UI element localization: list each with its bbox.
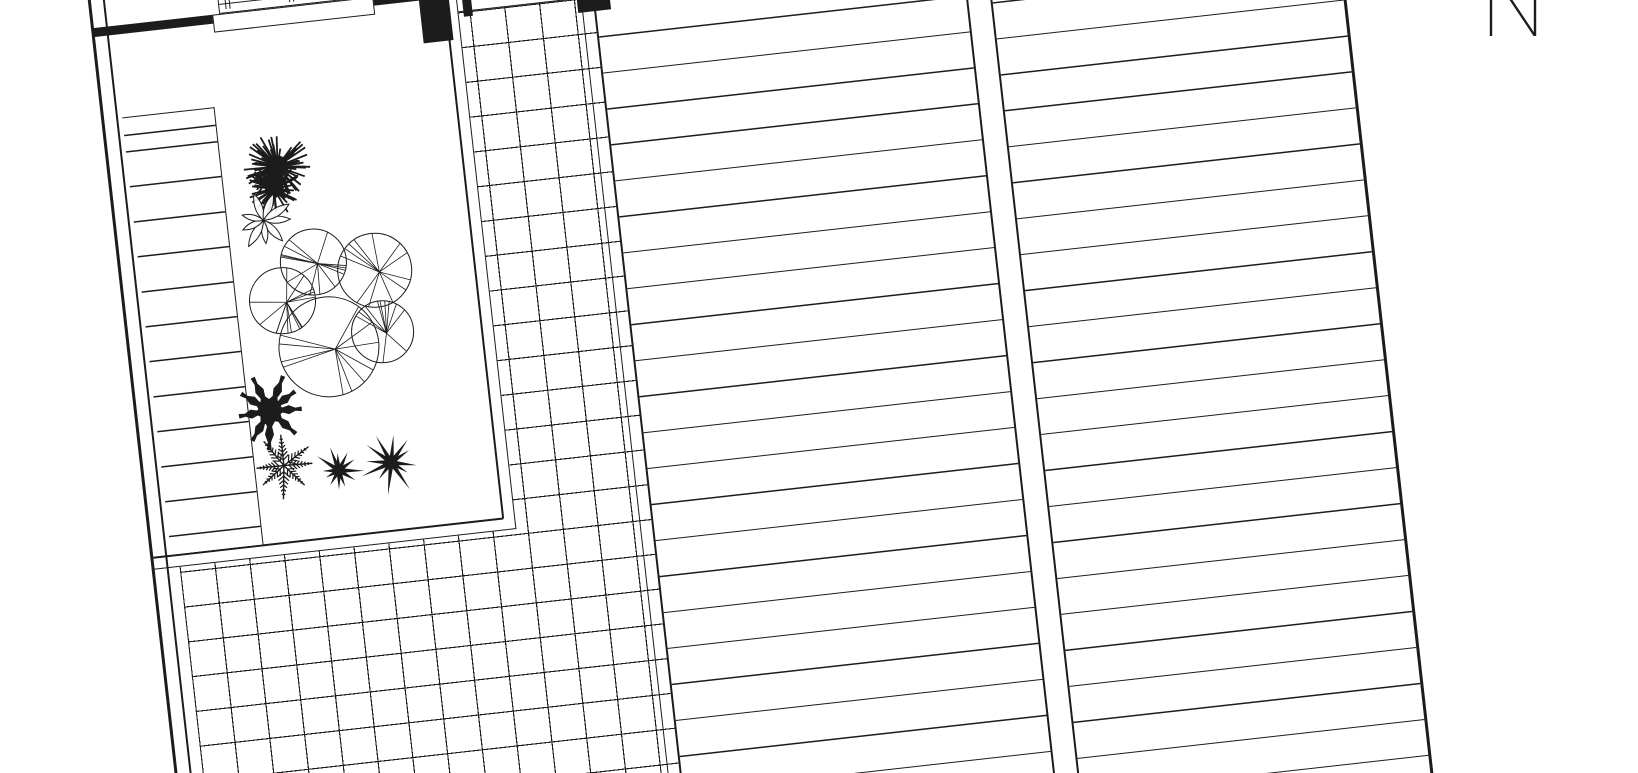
tree-canopy-symbol bbox=[334, 229, 416, 311]
tree-canopy-symbol bbox=[246, 264, 319, 337]
deck-panel-right bbox=[977, 0, 1436, 773]
site-plan-canvas: N bbox=[0, 0, 1638, 773]
star-plant-symbol bbox=[316, 444, 366, 491]
window-mullion-icon bbox=[224, 0, 230, 9]
fern-plant-symbol bbox=[253, 432, 316, 502]
window-mullion-icon bbox=[288, 0, 294, 2]
star-plant-symbol bbox=[357, 432, 420, 498]
courtyard-pier bbox=[419, 0, 454, 43]
plan-rotated-layer bbox=[0, 0, 1638, 773]
north-letter-glyph bbox=[1486, 0, 1540, 36]
north-indicator: N bbox=[1486, 0, 1542, 36]
planting-symbols bbox=[187, 99, 530, 530]
